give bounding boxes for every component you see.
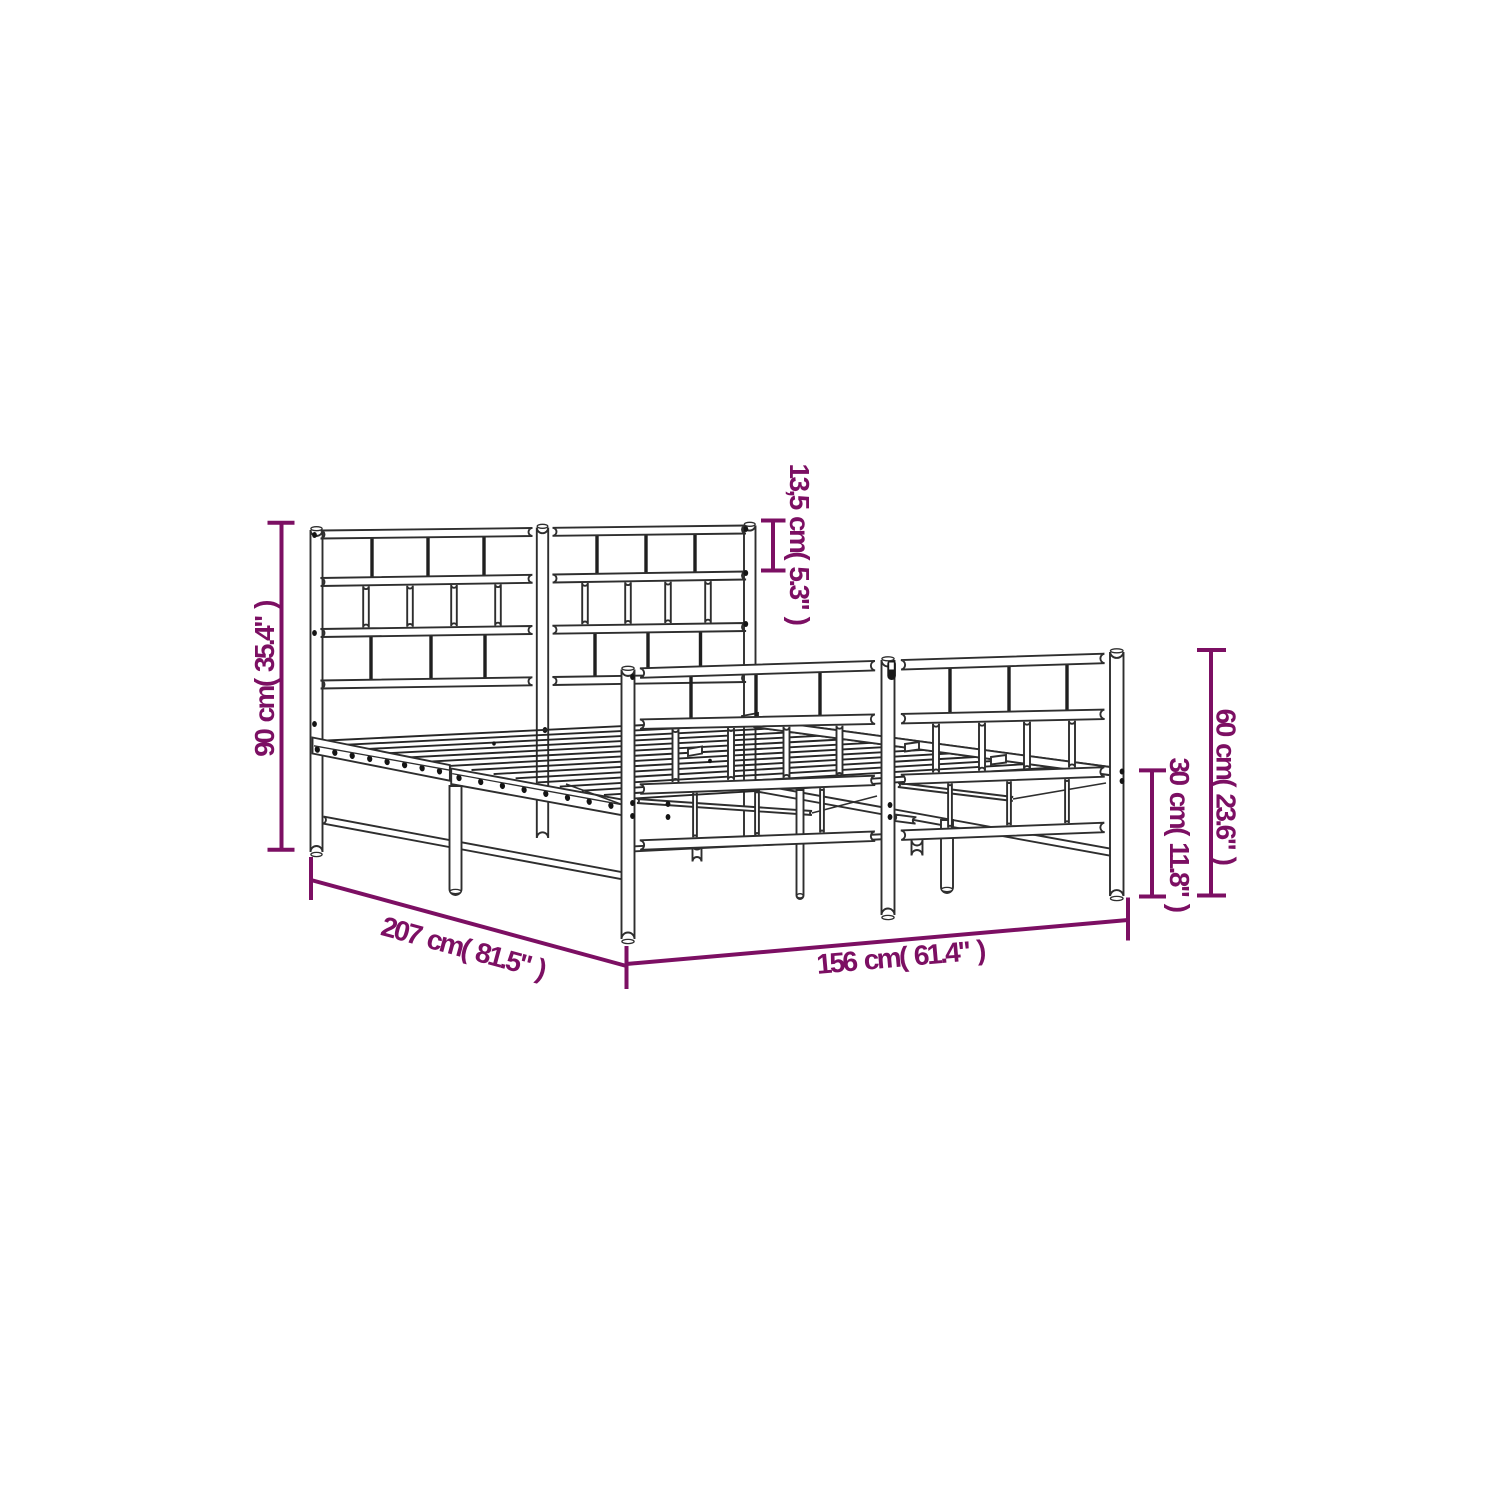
- svg-text:90 cm( 35.4" ): 90 cm( 35.4" ): [249, 601, 280, 757]
- svg-text:13,5 cm( 5.3" ): 13,5 cm( 5.3" ): [784, 463, 815, 624]
- svg-text:60 cm( 23.6" ): 60 cm( 23.6" ): [1210, 709, 1241, 865]
- svg-text:30 cm( 11.8" ): 30 cm( 11.8" ): [1164, 757, 1195, 911]
